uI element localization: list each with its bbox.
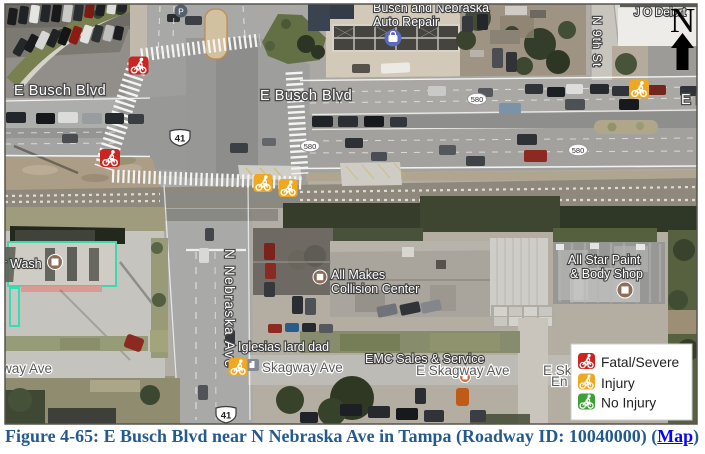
svg-text:E Bu: E Bu (681, 92, 705, 108)
svg-text:No Injury: No Injury (601, 396, 656, 411)
svg-text:E Busch Blvd: E Busch Blvd (14, 83, 106, 99)
svg-text:N 9th St: N 9th St (590, 16, 604, 67)
svg-text:All Star Paint: All Star Paint (568, 253, 641, 267)
svg-text:Auto Repair: Auto Repair (373, 15, 439, 29)
svg-text:EMC Sales & Service: EMC Sales & Service (365, 352, 485, 366)
svg-text:way Ave: way Ave (1, 361, 52, 376)
svg-text:All Makes: All Makes (331, 268, 385, 282)
svg-text:Collision Center: Collision Center (331, 282, 419, 296)
svg-text:Injury: Injury (601, 376, 635, 391)
svg-text:Fatal/Severe: Fatal/Severe (601, 355, 680, 370)
svg-text:41: 41 (221, 411, 232, 422)
svg-text:Skagway Ave: Skagway Ave (262, 360, 343, 375)
svg-text:& Body Shop: & Body Shop (570, 267, 643, 281)
svg-text:Busch and Nebraska: Busch and Nebraska (373, 1, 489, 15)
svg-text:580: 580 (471, 95, 484, 104)
svg-text:r Wash: r Wash (3, 257, 42, 271)
svg-text:E Busch Blvd: E Busch Blvd (260, 88, 352, 104)
svg-text:41: 41 (175, 134, 186, 145)
svg-text:Iglesias lard dad: Iglesias lard dad (238, 340, 329, 354)
svg-text:En: En (551, 374, 568, 389)
svg-text:580: 580 (304, 142, 317, 151)
svg-text:580: 580 (572, 146, 585, 155)
svg-text:P: P (178, 7, 184, 17)
svg-text:N Nebraska Ave: N Nebraska Ave (222, 249, 237, 369)
